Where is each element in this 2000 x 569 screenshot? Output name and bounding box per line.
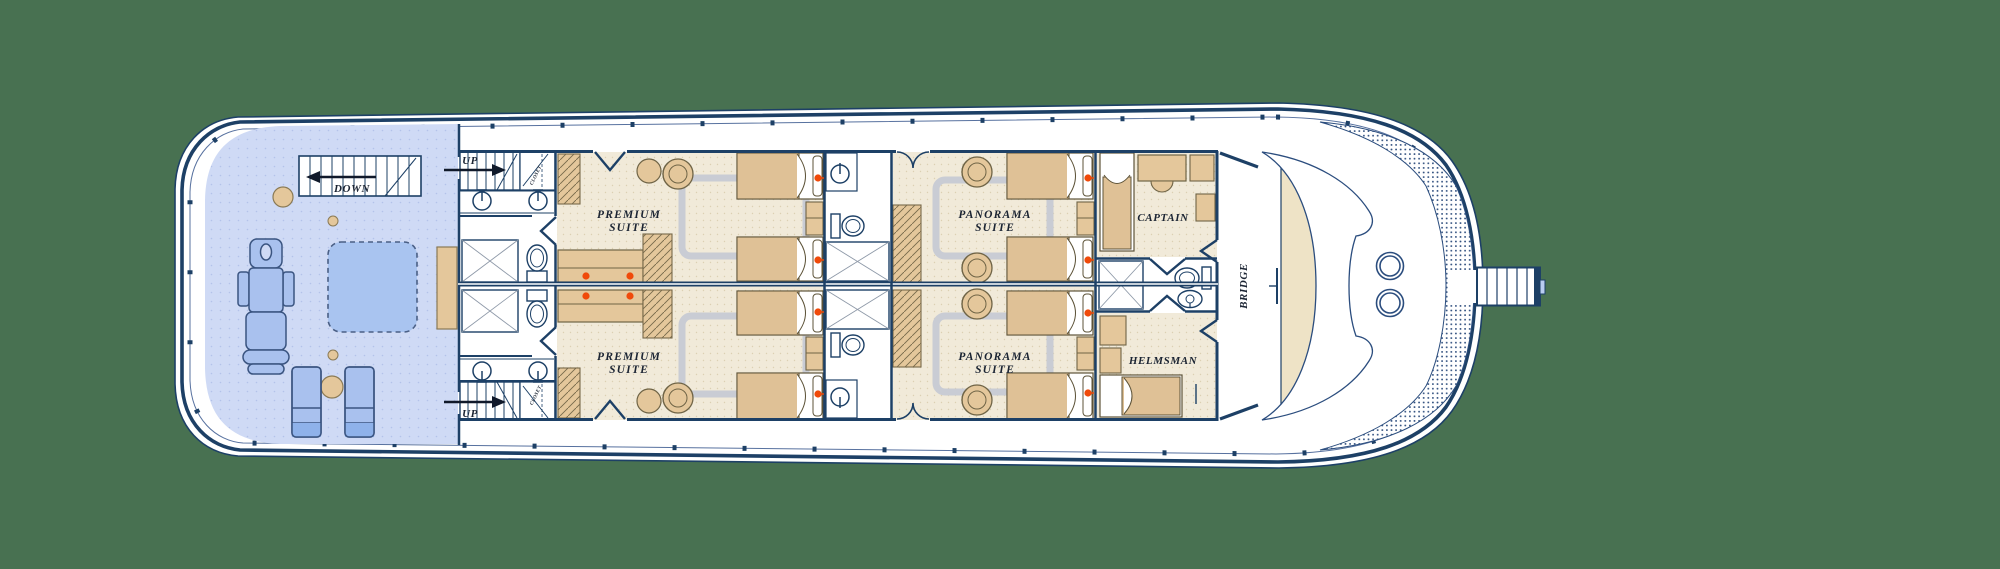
- bowsprit-landing: [1448, 270, 1478, 303]
- nightstand: [1077, 337, 1094, 370]
- round-table: [637, 389, 661, 413]
- deck-stool: [273, 187, 293, 207]
- panorama-suite-upper-label-line1: PANORAMA: [958, 209, 1031, 221]
- bowsprit: [1448, 268, 1545, 306]
- wardrobe: [558, 368, 580, 418]
- deck-plan-page: DOWN: [0, 0, 2000, 569]
- bed-1: [1007, 291, 1093, 335]
- bowsprit-tip-tab: [1540, 280, 1545, 294]
- shower-top-aft: [462, 240, 518, 282]
- tub-chair-1: [962, 289, 992, 319]
- captain-cabinet-1: [1190, 155, 1214, 181]
- stairs-up-top-label: UP: [462, 155, 478, 167]
- panorama-suite-upper-label-line2: SUITE: [975, 222, 1015, 234]
- bowsprit-end-bar: [1534, 268, 1540, 305]
- bed-1: [737, 153, 823, 199]
- captain-desk: [1138, 155, 1186, 181]
- captain-bed: [1100, 153, 1134, 251]
- wardrobe: [893, 205, 921, 282]
- nightstand: [806, 337, 823, 370]
- premium-suite-upper-label-line1: PREMIUM: [597, 209, 661, 221]
- toilet: [831, 214, 864, 238]
- nightstand: [1077, 202, 1094, 235]
- wardrobe-2: [643, 290, 672, 338]
- panorama-suite-lower-label-line1: PANORAMA: [958, 351, 1031, 363]
- sun-lounger-1: [292, 367, 321, 437]
- captain-label: CAPTAIN: [1137, 212, 1189, 224]
- toilet-top-aft: [527, 245, 547, 282]
- bed-2: [737, 237, 823, 281]
- captain-cabinet-2: [1196, 194, 1215, 221]
- closet-top: CLOSET: [520, 152, 555, 190]
- tub-chair-2: [962, 385, 992, 415]
- deck-stool-small: [328, 216, 338, 226]
- sink: [1178, 291, 1202, 309]
- stairs-down: DOWN: [299, 156, 421, 196]
- aft-deck: DOWN: [205, 124, 458, 444]
- nightstand: [806, 202, 823, 235]
- tub-chair-1: [962, 157, 992, 187]
- closet-bottom: CLOSET: [520, 382, 555, 420]
- wardrobe-2: [643, 234, 672, 282]
- bed-2: [1007, 373, 1093, 419]
- premium-suite-lower-label-line2: SUITE: [609, 364, 649, 376]
- winch-2: [1377, 290, 1404, 317]
- deck-bench: [437, 247, 457, 329]
- helmsman-cabinet-1: [1100, 316, 1126, 345]
- wardrobe: [893, 290, 921, 367]
- wardrobe: [558, 154, 580, 204]
- premium-suite-upper-label-line2: SUITE: [609, 222, 649, 234]
- deck-plan: DOWN: [0, 0, 2000, 569]
- tub-chair: [663, 159, 693, 189]
- premium-suite-lower-label-line1: PREMIUM: [597, 351, 661, 363]
- shower: [826, 242, 889, 281]
- winch-1: [1377, 253, 1404, 280]
- helmsman-bed: [1100, 375, 1182, 417]
- bed-2: [1007, 237, 1093, 281]
- tub-chair-2: [962, 253, 992, 283]
- spa-bed: [328, 242, 417, 332]
- toilet: [831, 333, 864, 357]
- bed-1: [737, 291, 823, 335]
- deck-table: [321, 376, 343, 398]
- sun-lounger-2: [345, 367, 374, 437]
- helmsman-cabinet-2: [1100, 348, 1121, 373]
- helmsman-label: HELMSMAN: [1128, 355, 1198, 367]
- shower-bottom-aft: [462, 290, 518, 332]
- bed-1: [1007, 153, 1093, 199]
- tub-chair: [663, 383, 693, 413]
- panorama-suite-lower-label-line2: SUITE: [975, 364, 1015, 376]
- bed-2: [737, 373, 823, 419]
- round-table: [637, 159, 661, 183]
- stairs-down-label: DOWN: [333, 183, 370, 195]
- shower: [826, 290, 889, 329]
- toilet-bottom-aft: [527, 290, 547, 327]
- bridge-label: BRIDGE: [1238, 263, 1250, 310]
- deck-stool-small-2: [328, 350, 338, 360]
